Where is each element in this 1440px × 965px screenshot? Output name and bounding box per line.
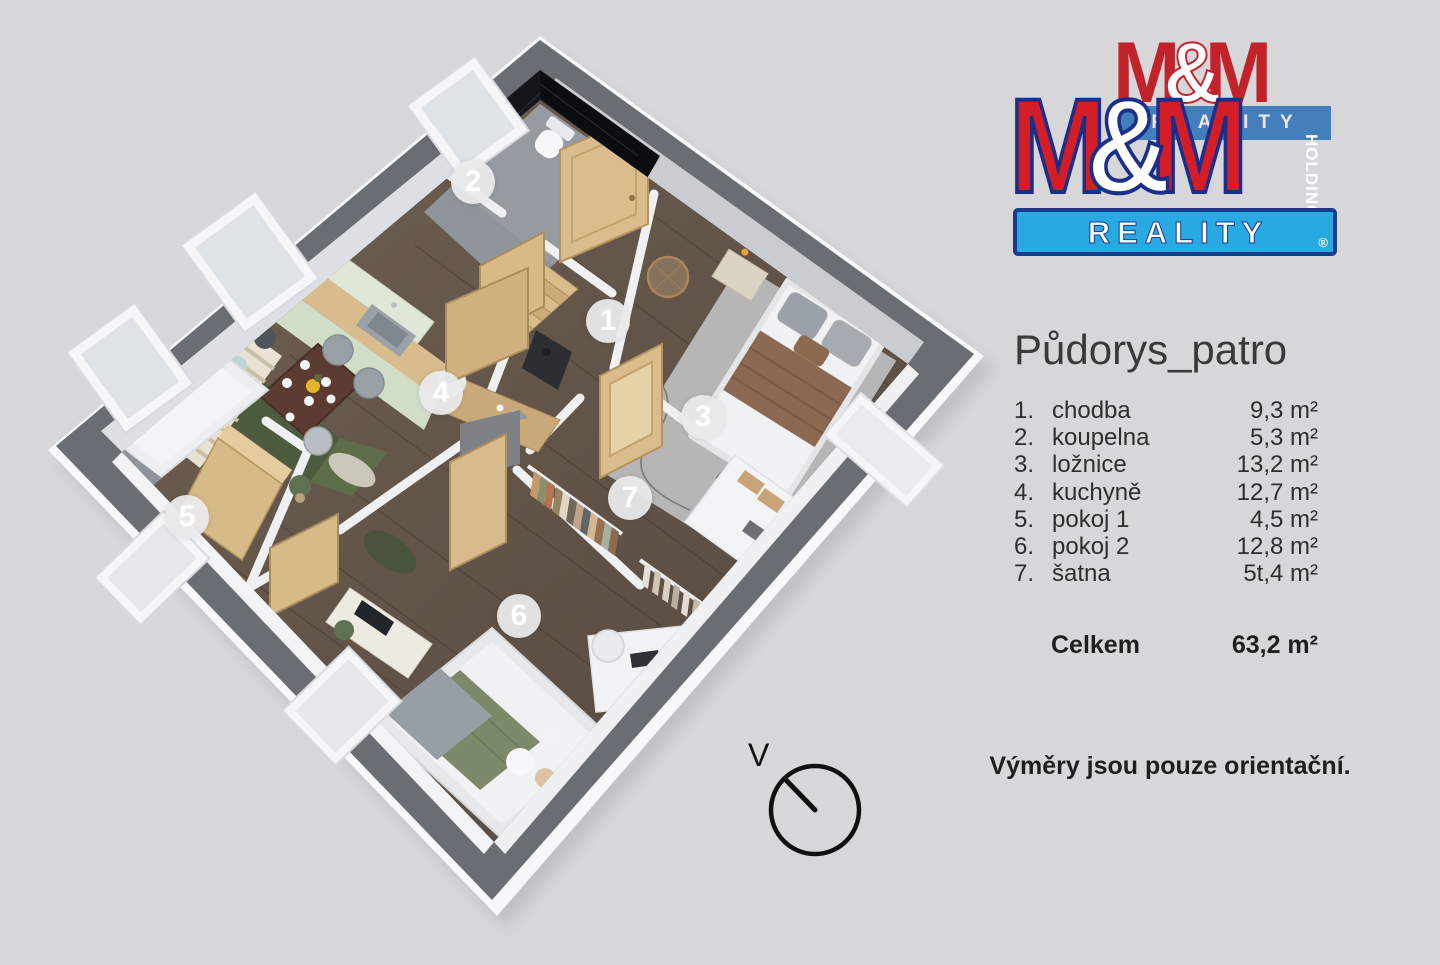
room-marker-5: 5 [165,495,209,539]
legend-row: 5.pokoj 14,5 m² [1014,506,1318,533]
legend-row: 2.koupelna5,3 m² [1014,424,1318,451]
total-area: 63,2 m² [1232,631,1318,660]
room-marker-2: 2 [451,160,495,204]
logo-reality-banner: REALITY ® [1013,208,1337,256]
disclaimer-text: Výměry jsou pouze orientační. [958,752,1382,781]
compass: V [740,733,910,903]
room-marker-3: 3 [681,395,725,439]
ampersand-glyph: & [1086,72,1168,221]
total-label: Celkem [1051,631,1140,660]
flyer-canvas: 1234567 V M&M REALITY M&M HOLDING REALIT… [0,0,1440,960]
legend-row: 6.pokoj 212,8 m² [1014,533,1318,560]
compass-east-label: V [748,737,769,774]
hanging-chair [648,257,688,297]
legend-row: 3.ložnice13,2 m² [1014,451,1318,478]
registered-trademark-icon: ® [1318,235,1328,250]
legend-row: 1.chodba9,3 m² [1014,397,1318,424]
page-title: Půdorys_patro [1014,326,1287,374]
logo-front-mm: M&M [1009,80,1245,214]
total-row: Celkem 63,2 m² [1014,631,1318,660]
room-marker-7: 7 [608,476,652,520]
room-marker-1: 1 [586,299,630,343]
legend-row: 4.kuchyně12,7 m² [1014,479,1318,506]
room-legend: 1.chodba9,3 m² 2.koupelna5,3 m² 3.ložnic… [1014,397,1318,587]
legend-row: 7.šatna5t,4 m² [1014,560,1318,587]
logo-holding-text: HOLDING [1301,134,1321,219]
room-marker-6: 6 [497,594,541,638]
room-marker-4: 4 [419,371,463,415]
mm-reality-logo: M&M REALITY M&M HOLDING REALITY ® [1005,36,1345,260]
